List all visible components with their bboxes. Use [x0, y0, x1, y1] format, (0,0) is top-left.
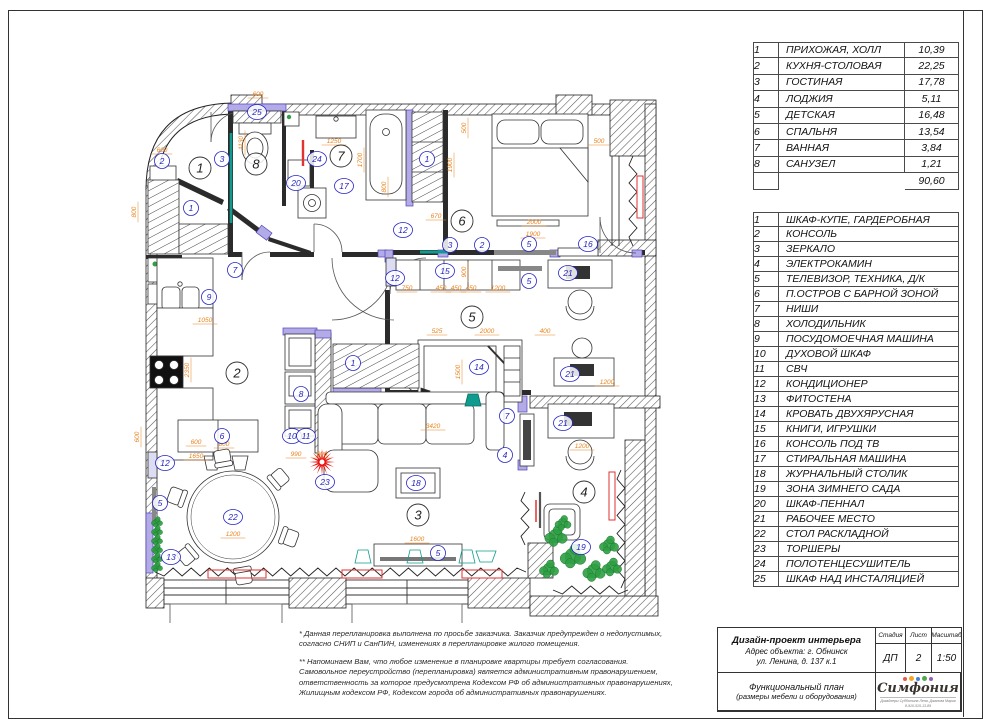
item-number-label: 9 [202, 290, 217, 305]
dimension-label: 500 [589, 138, 610, 145]
item-number-label: 1 [346, 356, 361, 371]
dining-chair [233, 566, 254, 586]
project-info: Дизайн-проект интерьера Адрес объекта: г… [718, 628, 876, 673]
svg-text:1050: 1050 [198, 317, 213, 324]
svg-text:5: 5 [436, 548, 441, 558]
svg-text:9: 9 [207, 292, 212, 302]
furniture-row-name: СВЧ [779, 362, 959, 377]
room-row-name: ДЕТСКАЯ [779, 108, 905, 124]
svg-text:13: 13 [166, 552, 176, 562]
document-title-cell: Функциональный план (размеры мебели и об… [718, 673, 876, 711]
room-row: 3ГОСТИНАЯ17,78 [753, 75, 959, 91]
corner-sink [284, 112, 299, 126]
room-row-n: 1 [753, 42, 779, 58]
item-number-label: 16 [579, 237, 598, 252]
item-number-label: 3 [215, 152, 230, 167]
svg-text:5: 5 [468, 310, 476, 325]
room-row-name: САНУЗЕЛ [779, 157, 905, 173]
dimension-label: 1900 [447, 153, 454, 178]
room-row-n: 8 [753, 157, 779, 173]
svg-text:23: 23 [319, 477, 330, 487]
svg-text:1130: 1130 [238, 136, 245, 150]
plant-icon [583, 561, 605, 582]
item-number-label: 7 [500, 409, 515, 424]
room-row: 90,60 [753, 173, 959, 189]
room-number-label: 6 [451, 210, 473, 232]
room-row-name: СПАЛЬНЯ [779, 124, 905, 140]
furniture-layer [148, 110, 614, 586]
dining-chair [266, 466, 291, 491]
dimension-label: 1600 [405, 536, 430, 543]
room-row-name: КУХНЯ-СТОЛОВАЯ [779, 58, 905, 74]
dimension-label: 2350 [184, 358, 191, 383]
furniture-row-n: 5 [753, 272, 779, 287]
furniture-row-name: НИШИ [779, 302, 959, 317]
furniture-row-name: ФИТОСТЕНА [779, 392, 959, 407]
item-number-label: 20 [287, 176, 306, 191]
svg-text:19: 19 [576, 542, 586, 552]
scale-value: 1:50 [932, 644, 961, 673]
furniture-row-n: 20 [753, 497, 779, 512]
furniture-row-n: 2 [753, 227, 779, 242]
dining-chair [278, 526, 300, 549]
stove [150, 356, 183, 388]
svg-text:5: 5 [527, 239, 532, 249]
svg-text:8: 8 [299, 389, 304, 399]
svg-text:450: 450 [466, 285, 477, 292]
room-area-table: 1ПРИХОЖАЯ, ХОЛЛ10,392КУХНЯ-СТОЛОВАЯ22,25… [753, 42, 959, 190]
furniture-row-name: П.ОСТРОВ С БАРНОЙ ЗОНОЙ [779, 287, 959, 302]
svg-text:1: 1 [425, 154, 430, 164]
item-number-label: 5 [522, 237, 537, 252]
wardrobe [148, 180, 179, 254]
room-number-label: 3 [407, 504, 429, 526]
furniture-row-n: 21 [753, 512, 779, 527]
furniture-row-name: ШКАФ НАД ИНСТАЛЯЦИЕЙ [779, 572, 959, 587]
furniture-row: 9ПОСУДОМОЕЧНАЯ МАШИНА [753, 332, 959, 347]
room-row-area: 3,84 [905, 140, 959, 156]
svg-text:12: 12 [390, 273, 400, 283]
room-row: 6СПАЛЬНЯ13,54 [753, 124, 959, 140]
furniture-row: 13ФИТОСТЕНА [753, 392, 959, 407]
furniture-row-name: КОНДИЦИОНЕР [779, 377, 959, 392]
studio-logo: Симфония Дизайнеры Субботина Лена, Джано… [876, 673, 961, 711]
floor-plan: 6006008001130125017008005005001900200019… [125, 78, 675, 623]
logo-subtext: Дизайнеры Субботина Лена, Джанова Мария … [880, 697, 955, 708]
svg-text:1200: 1200 [600, 379, 615, 386]
furniture-row-n: 23 [753, 542, 779, 557]
item-number-label: 4 [498, 448, 513, 463]
furniture-row: 7НИШИ [753, 302, 959, 317]
sheet-value: 2 [906, 644, 932, 673]
furniture-row-n: 13 [753, 392, 779, 407]
drawing-sheet: 6006008001130125017008005005001900200019… [0, 0, 990, 728]
room-row-name: ЛОДЖИЯ [779, 91, 905, 107]
svg-text:1200: 1200 [226, 531, 241, 538]
item-number-label: 23 [316, 475, 335, 490]
item-number-label: 8 [294, 387, 309, 402]
room-row-n: 4 [753, 91, 779, 107]
furniture-row: 20ШКАФ-ПЕННАЛ [753, 497, 959, 512]
furniture-row-n: 10 [753, 347, 779, 362]
furniture-row-n: 7 [753, 302, 779, 317]
disclaimer-notes: * Данная перепланировка выполнена по про… [299, 629, 709, 706]
room-row-area: 5,11 [905, 91, 959, 107]
furniture-row: 5ТЕЛЕВИЗОР, ТЕХНИКА, Д/К [753, 272, 959, 287]
item-number-label: 5 [153, 496, 168, 511]
item-number-label: 25 [248, 105, 267, 120]
room-row-name: ВАННАЯ [779, 140, 905, 156]
svg-text:4: 4 [580, 485, 587, 500]
furniture-legend-table: 1ШКАФ-КУПЕ, ГАРДЕРОБНАЯ2КОНСОЛЬ3ЗЕРКАЛО4… [753, 212, 959, 587]
furniture-row-n: 22 [753, 527, 779, 542]
item-number-label: 14 [470, 360, 489, 375]
dimension-label: 800 [131, 202, 138, 223]
furniture-row-n: 17 [753, 452, 779, 467]
furniture-row-name: ПОЛОТЕНЦЕСУШИТЕЛЬ [779, 557, 959, 572]
svg-text:1900: 1900 [447, 157, 454, 172]
furniture-row-name: РАБОЧЕЕ МЕСТО [779, 512, 959, 527]
room-number-label: 4 [573, 481, 595, 503]
room-row-area: 1,21 [905, 157, 959, 173]
furniture-row-n: 15 [753, 422, 779, 437]
sofa-seat [378, 404, 426, 444]
dimension-label: 525 [427, 328, 448, 335]
furniture-row-n: 25 [753, 572, 779, 587]
room-row-n [753, 173, 779, 189]
svg-text:11: 11 [302, 431, 311, 441]
dimension-label: 2000 [475, 328, 500, 335]
svg-text:800: 800 [381, 181, 388, 192]
kitchen-counter [157, 308, 213, 356]
svg-text:1650: 1650 [189, 453, 204, 460]
svg-text:21: 21 [564, 369, 575, 379]
room-row-n: 3 [753, 75, 779, 91]
svg-text:2000: 2000 [479, 328, 495, 335]
room-row-area: 17,78 [905, 75, 959, 91]
pillow [497, 120, 539, 144]
item-number-label: 6 [215, 429, 230, 444]
furniture-row: 8ХОЛОДИЛЬНИК [753, 317, 959, 332]
room-number-label: 5 [461, 306, 483, 328]
room-number-label: 1 [189, 157, 211, 179]
item-number-label: 1 [184, 201, 199, 216]
tv-panel [498, 266, 542, 271]
wardrobe [179, 224, 228, 254]
svg-text:18: 18 [411, 478, 421, 488]
room-row-name: ГОСТИНАЯ [779, 75, 905, 91]
room-row-n: 5 [753, 108, 779, 124]
furniture-row-n: 9 [753, 332, 779, 347]
dimension-label: 1900 [521, 231, 546, 238]
svg-text:600: 600 [134, 431, 141, 442]
kitchen-sink [182, 287, 199, 310]
svg-text:2: 2 [159, 156, 165, 166]
speaker-icon [465, 394, 481, 406]
item-number-label: 1 [420, 152, 435, 167]
item-number-label: 3 [443, 238, 458, 253]
svg-text:5: 5 [158, 498, 163, 508]
furniture-row-n: 1 [753, 212, 779, 227]
item-number-label: 2 [475, 238, 490, 253]
item-number-label: 5 [431, 546, 446, 561]
svg-text:2: 2 [479, 240, 485, 250]
svg-text:800: 800 [317, 451, 328, 458]
item-number-label: 24 [308, 152, 327, 167]
tv-panel [380, 557, 456, 561]
svg-text:3: 3 [414, 508, 422, 523]
furniture-row: 17СТИРАЛЬНАЯ МАШИНА [753, 452, 959, 467]
svg-text:21: 21 [562, 268, 573, 278]
scale-label: Масштаб [932, 628, 961, 644]
svg-text:800: 800 [131, 206, 138, 217]
room-row-n: 7 [753, 140, 779, 156]
project-address: Адрес объекта: г. Обнинск [745, 647, 847, 656]
svg-text:900: 900 [461, 266, 468, 277]
svg-text:1200: 1200 [491, 285, 506, 292]
svg-text:450: 450 [451, 285, 462, 292]
furniture-row-name: ПОСУДОМОЕЧНАЯ МАШИНА [779, 332, 959, 347]
item-number-label: 12 [156, 456, 175, 471]
room-row-area: 16,48 [905, 108, 959, 124]
svg-text:24: 24 [311, 154, 322, 164]
room-row-n: 2 [753, 58, 779, 74]
furniture-row: 1ШКАФ-КУПЕ, ГАРДЕРОБНАЯ [753, 212, 959, 227]
item-number-label: 22 [224, 510, 243, 525]
furniture-row: 22СТОЛ РАСКЛАДНОЙ [753, 527, 959, 542]
svg-text:1500: 1500 [455, 364, 462, 379]
svg-text:12: 12 [160, 458, 170, 468]
svg-text:6: 6 [458, 214, 466, 229]
item-number-label: 11 [297, 429, 316, 444]
furniture-row-name: ТЕЛЕВИЗОР, ТЕХНИКА, Д/К [779, 272, 959, 287]
svg-text:600: 600 [191, 439, 202, 446]
svg-text:525: 525 [432, 328, 443, 335]
item-number-label: 21 [559, 266, 578, 281]
svg-text:500: 500 [594, 138, 605, 145]
svg-text:25: 25 [251, 107, 262, 117]
furniture-row-n: 8 [753, 317, 779, 332]
furniture-row-name: ЗОНА ЗИМНЕГО САДА [779, 482, 959, 497]
furniture-row: 19ЗОНА ЗИМНЕГО САДА [753, 482, 959, 497]
room-row-name: ПРИХОЖАЯ, ХОЛЛ [779, 42, 905, 58]
room-row: 7ВАННАЯ3,84 [753, 140, 959, 156]
stage-value: ДП [876, 644, 906, 673]
svg-text:2350: 2350 [184, 362, 191, 378]
furniture-row-n: 11 [753, 362, 779, 377]
svg-text:16: 16 [583, 239, 593, 249]
note-2: ** Напоминаем Вам, что любое изменение в… [299, 657, 709, 699]
furniture-row: 25ШКАФ НАД ИНСТАЛЯЦИЕЙ [753, 572, 959, 587]
furniture-row-n: 3 [753, 242, 779, 257]
sheet-label: Лист [906, 628, 932, 644]
svg-text:1250: 1250 [327, 138, 342, 145]
furniture-row: 12КОНДИЦИОНЕР [753, 377, 959, 392]
kitchen-sink [162, 287, 180, 310]
dimension-label: 400 [535, 328, 556, 335]
furniture-row-n: 18 [753, 467, 779, 482]
svg-text:17: 17 [339, 181, 349, 191]
speaker-icon [476, 551, 496, 562]
svg-text:4: 4 [503, 450, 508, 460]
furniture-row: 24ПОЛОТЕНЦЕСУШИТЕЛЬ [753, 557, 959, 572]
furniture-row-n: 24 [753, 557, 779, 572]
furniture-row-n: 16 [753, 437, 779, 452]
furniture-row-name: КНИГИ, ИГРУШКИ [779, 422, 959, 437]
item-number-label: 2 [155, 154, 170, 169]
svg-text:21: 21 [557, 418, 568, 428]
svg-text:7: 7 [337, 149, 345, 164]
furniture-row: 14КРОВАТЬ ДВУХЯРУСНАЯ [753, 407, 959, 422]
sheet-inner-border [963, 10, 964, 717]
furniture-row: 10ДУХОВОЙ ШКАФ [753, 347, 959, 362]
furniture-row: 16КОНСОЛЬ ПОД ТВ [753, 437, 959, 452]
item-number-label: 19 [572, 540, 591, 555]
room-row-n: 6 [753, 124, 779, 140]
svg-text:6: 6 [220, 431, 225, 441]
pillow [541, 120, 583, 144]
svg-text:400: 400 [540, 328, 551, 335]
room-row-area: 22,25 [905, 58, 959, 74]
item-number-label: 21 [554, 416, 573, 431]
desk-chair [572, 338, 592, 358]
svg-text:8: 8 [252, 157, 260, 172]
svg-text:15: 15 [440, 266, 450, 276]
furniture-row-name: ДУХОВОЙ ШКАФ [779, 347, 959, 362]
room-row: 8САНУЗЕЛ1,21 [753, 157, 959, 173]
svg-text:3: 3 [448, 240, 453, 250]
title-block: Дизайн-проект интерьера Адрес объекта: г… [717, 627, 962, 712]
room-row-area: 13,54 [905, 124, 959, 140]
item-number-label: 12 [394, 223, 413, 238]
svg-text:2000: 2000 [526, 219, 542, 226]
furniture-row-name: ЖУРНАЛЬНЫЙ СТОЛИК [779, 467, 959, 482]
room-row: 4ЛОДЖИЯ5,11 [753, 91, 959, 107]
svg-text:1200: 1200 [575, 443, 590, 450]
dimension-label: 600 [134, 427, 141, 448]
furniture-row-name: ЭЛЕКТРОКАМИН [779, 257, 959, 272]
furniture-row: 21РАБОЧЕЕ МЕСТО [753, 512, 959, 527]
room-row: 5ДЕТСКАЯ16,48 [753, 108, 959, 124]
furniture-row-name: КРОВАТЬ ДВУХЯРУСНАЯ [779, 407, 959, 422]
furniture-row: 2КОНСОЛЬ [753, 227, 959, 242]
svg-text:12: 12 [398, 225, 408, 235]
item-number-label: 12 [386, 271, 405, 286]
dimension-label: 1250 [322, 138, 347, 145]
furniture-row-n: 6 [753, 287, 779, 302]
furniture-row-name: ТОРШЕРЫ [779, 542, 959, 557]
svg-text:1: 1 [196, 161, 203, 176]
room-number-label: 2 [226, 362, 248, 384]
furniture-row-n: 12 [753, 377, 779, 392]
furniture-row: 11СВЧ [753, 362, 959, 377]
svg-text:7: 7 [505, 411, 510, 421]
svg-text:14: 14 [474, 362, 484, 372]
furniture-row-n: 14 [753, 407, 779, 422]
svg-text:670: 670 [431, 213, 442, 220]
item-number-label: 21 [561, 367, 580, 382]
svg-text:20: 20 [290, 178, 301, 188]
item-number-label: 13 [162, 550, 181, 565]
project-address2: ул. Ленина, д. 137 к.1 [757, 657, 837, 666]
document-subtitle: (размеры мебели и оборудования) [736, 692, 857, 701]
furniture-row: 4ЭЛЕКТРОКАМИН [753, 257, 959, 272]
logo-text: Симфония [877, 682, 959, 695]
dining-chair [166, 485, 188, 508]
room-number-label: 7 [330, 145, 352, 167]
svg-text:1700: 1700 [357, 152, 364, 167]
furniture-row-name: СТИРАЛЬНАЯ МАШИНА [779, 452, 959, 467]
svg-text:3: 3 [220, 154, 225, 164]
desk-chair [568, 290, 592, 314]
svg-text:600: 600 [253, 91, 264, 98]
furniture-row: 23ТОРШЕРЫ [753, 542, 959, 557]
room-row-area: 10,39 [905, 42, 959, 58]
furniture-row-name: КОНСОЛЬ [779, 227, 959, 242]
furniture-row: 3ЗЕРКАЛО [753, 242, 959, 257]
svg-text:500: 500 [461, 122, 468, 133]
stage-label: Стадия [876, 628, 906, 644]
furniture-row-n: 4 [753, 257, 779, 272]
furniture-row: 15КНИГИ, ИГРУШКИ [753, 422, 959, 437]
svg-text:1600: 1600 [410, 536, 425, 543]
bunk-ladder [504, 346, 520, 396]
svg-text:22: 22 [227, 512, 238, 522]
furniture-row-name: ШКАФ-КУПЕ, ГАРДЕРОБНАЯ [779, 212, 959, 227]
speaker-icon [355, 550, 371, 563]
furniture-row-name: КОНСОЛЬ ПОД ТВ [779, 437, 959, 452]
item-number-label: 17 [335, 179, 354, 194]
furniture-row-name: ХОЛОДИЛЬНИК [779, 317, 959, 332]
svg-text:1: 1 [189, 203, 194, 213]
furniture-row-n: 19 [753, 482, 779, 497]
room-number-label: 8 [245, 153, 267, 175]
svg-text:990: 990 [291, 451, 302, 458]
room-row: 1ПРИХОЖАЯ, ХОЛЛ10,39 [753, 42, 959, 58]
svg-text:450: 450 [436, 285, 447, 292]
project-title: Дизайн-проект интерьера [732, 635, 861, 646]
document-title: Функциональный план [749, 682, 844, 692]
svg-text:7: 7 [233, 265, 238, 275]
furniture-row: 6П.ОСТРОВ С БАРНОЙ ЗОНОЙ [753, 287, 959, 302]
furniture-row-name: СТОЛ РАСКЛАДНОЙ [779, 527, 959, 542]
note-1: * Данная перепланировка выполнена по про… [299, 629, 709, 650]
svg-text:750: 750 [402, 285, 413, 292]
dimension-label: 1700 [357, 148, 364, 173]
room-row-area: 90,60 [905, 173, 959, 189]
svg-text:2: 2 [232, 366, 241, 381]
svg-text:1: 1 [351, 358, 356, 368]
item-number-label: 18 [407, 476, 426, 491]
item-number-label: 15 [436, 264, 455, 279]
dining-chair [212, 448, 233, 468]
item-number-label: 7 [228, 263, 243, 278]
furniture-row-name: ШКАФ-ПЕННАЛ [779, 497, 959, 512]
svg-text:5: 5 [527, 276, 532, 286]
room-row-name [779, 173, 905, 189]
dimension-label: 500 [461, 118, 468, 139]
item-number-label: 5 [522, 274, 537, 289]
plant-icon [599, 536, 618, 554]
svg-text:600: 600 [157, 147, 168, 154]
room-row: 2КУХНЯ-СТОЛОВАЯ22,25 [753, 58, 959, 74]
bar-stool [232, 456, 248, 470]
dimension-label: 990 [286, 451, 307, 458]
svg-text:3420: 3420 [426, 423, 441, 430]
furniture-row-name: ЗЕРКАЛО [779, 242, 959, 257]
svg-text:10: 10 [287, 431, 297, 441]
furniture-row: 18ЖУРНАЛЬНЫЙ СТОЛИК [753, 467, 959, 482]
